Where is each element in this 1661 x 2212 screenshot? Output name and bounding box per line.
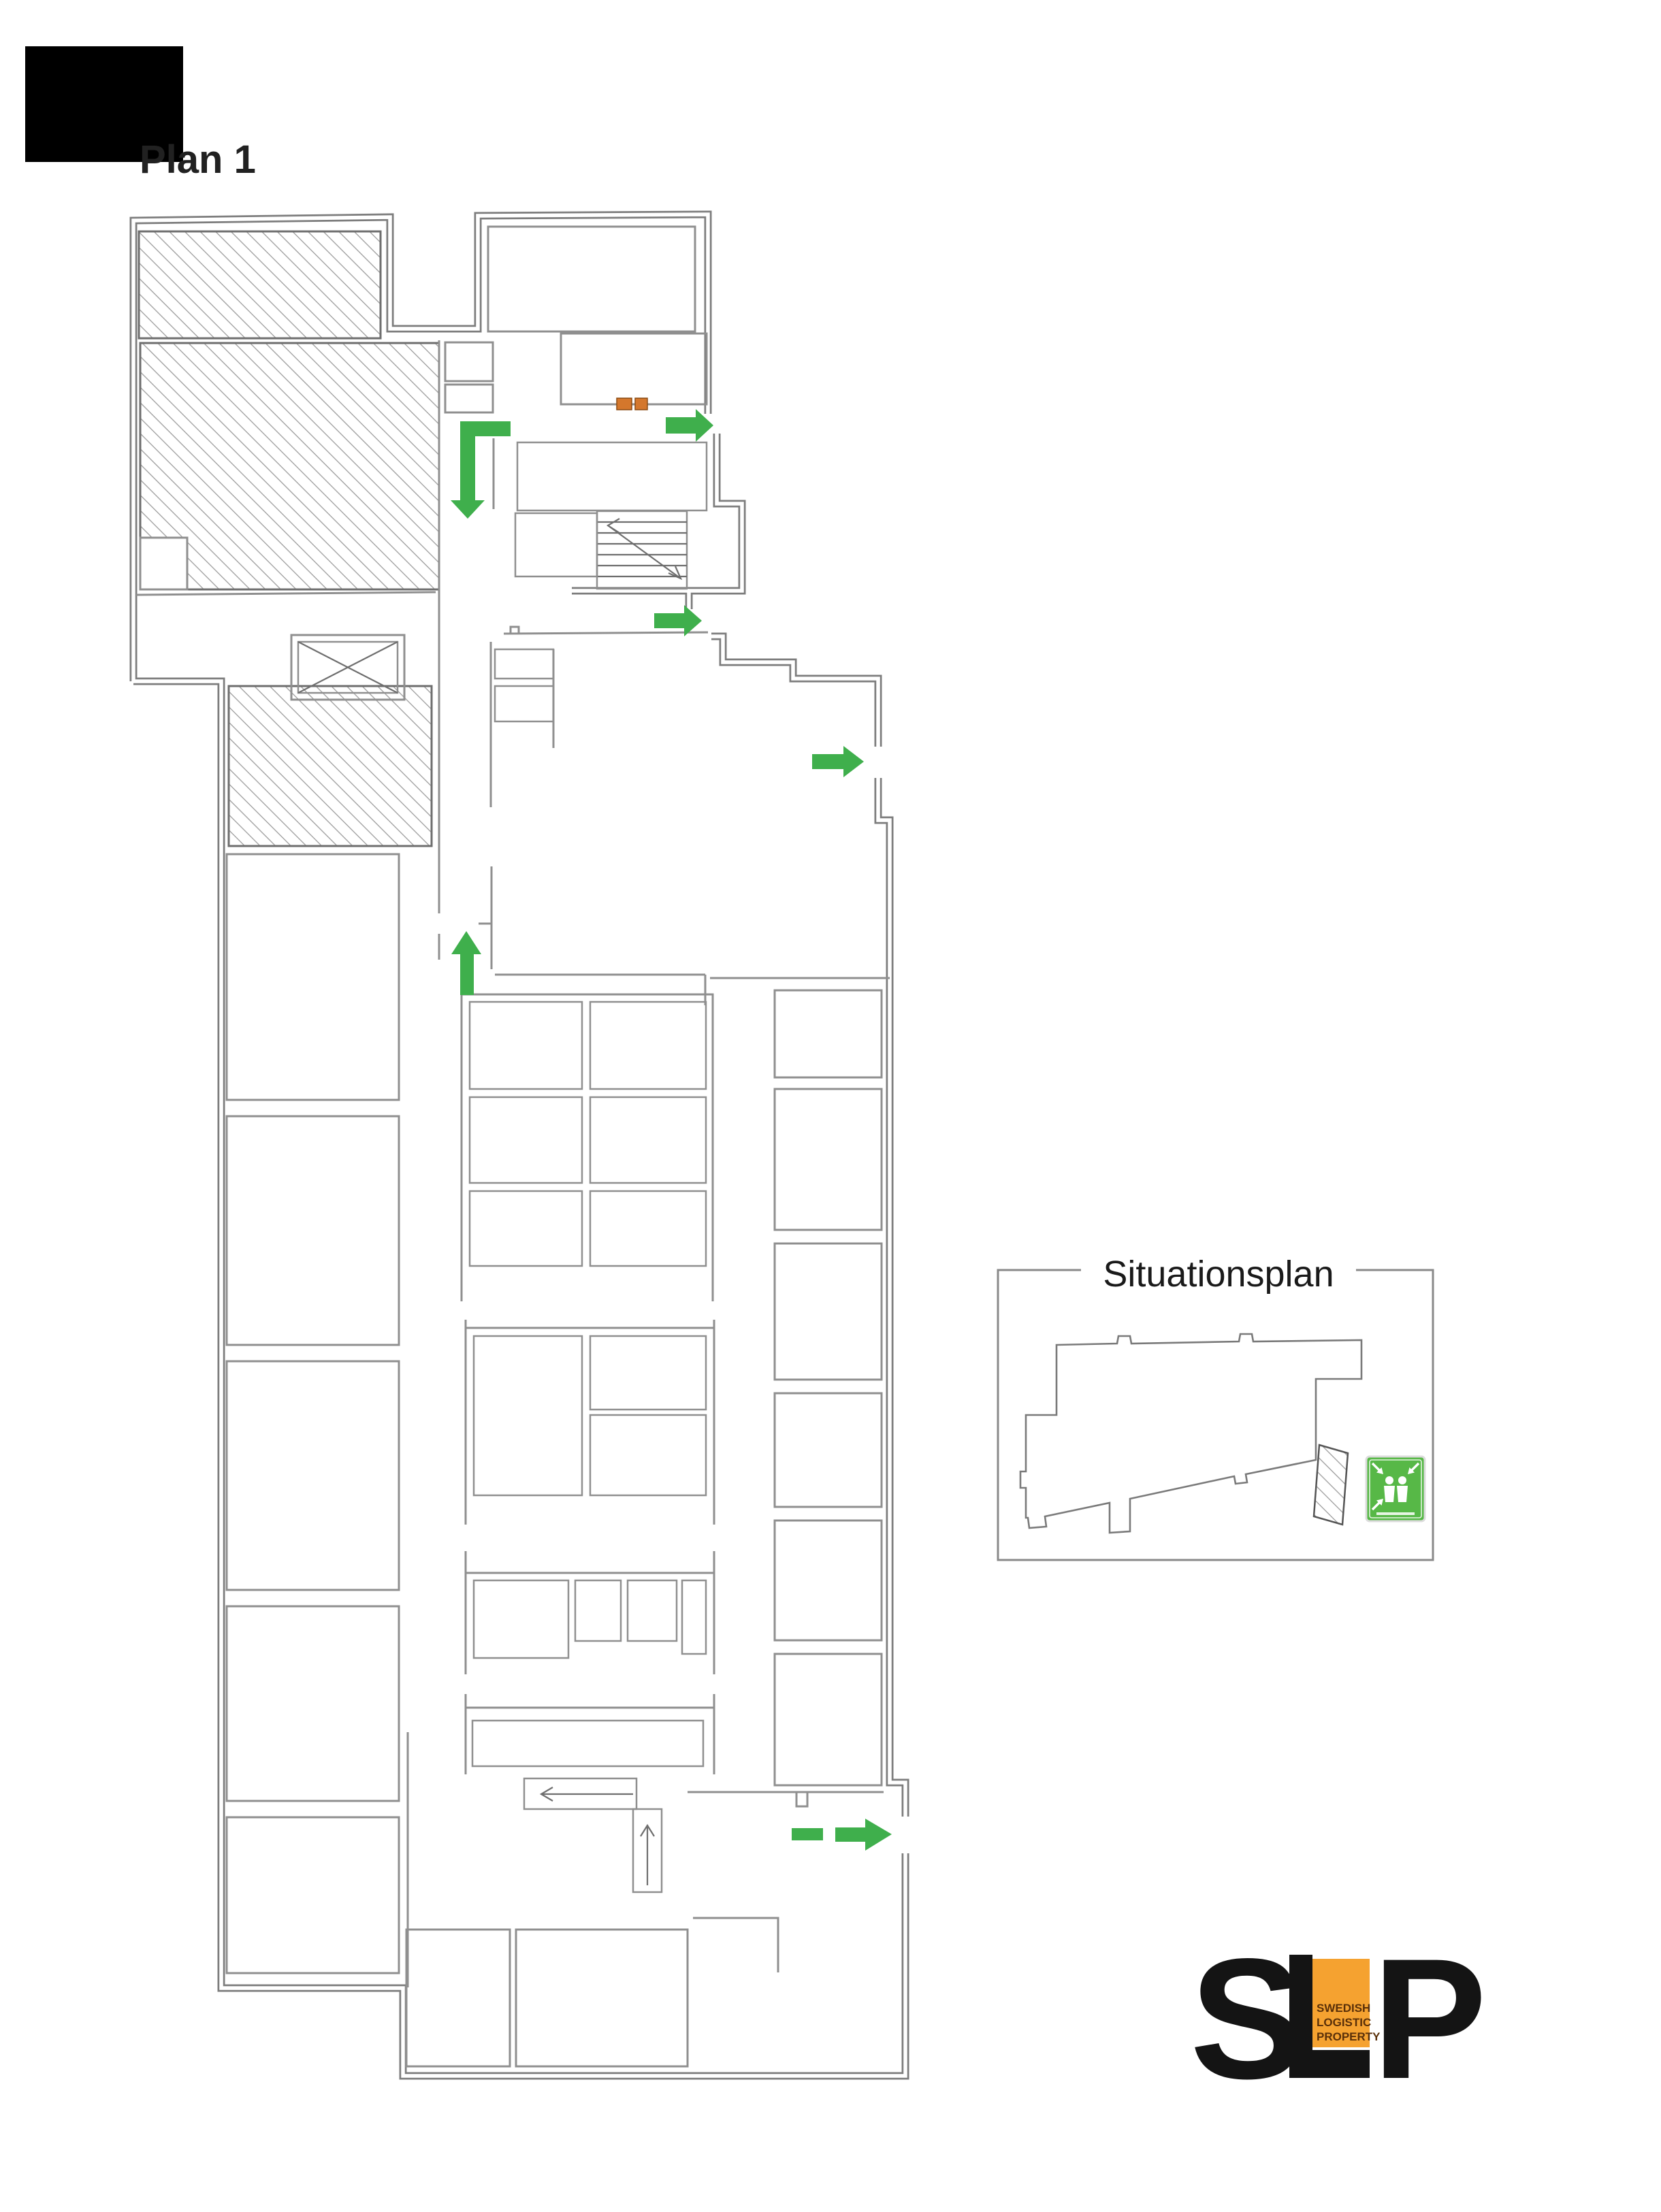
main-floor-plan bbox=[133, 214, 905, 2076]
escape-arrow-right-top-icon bbox=[666, 409, 713, 442]
left-room-column bbox=[227, 854, 399, 1973]
hatched-area-mid bbox=[229, 686, 432, 846]
situationsplan-title: Situationsplan bbox=[1103, 1254, 1334, 1295]
assembly-caption-strip bbox=[1376, 1512, 1415, 1515]
fire-door-marker-icon bbox=[617, 398, 647, 410]
central-room-blocks bbox=[462, 994, 714, 1774]
bottom-wing-rooms bbox=[406, 1732, 778, 2066]
right-room-column bbox=[688, 990, 884, 1806]
escape-arrow-right-mid-icon bbox=[812, 746, 864, 777]
hatched-area-large bbox=[140, 343, 439, 589]
escape-route-arrows bbox=[451, 409, 892, 1851]
slp-subtext-line2: LOGISTIC bbox=[1317, 2016, 1371, 2029]
slp-subtext-line3: PROPERTY bbox=[1317, 2030, 1381, 2043]
hatched-area-upper bbox=[139, 231, 381, 338]
floor-plan-canvas: Plan 1 bbox=[0, 0, 1661, 2212]
slp-letter-s: S bbox=[1190, 1923, 1304, 2115]
escape-arrow-right-bottom-dashed-icon bbox=[792, 1819, 892, 1851]
assembly-point-icon bbox=[42, 1457, 1425, 1521]
small-room-in-hatch bbox=[140, 538, 187, 589]
slp-subtext: SWEDISH LOGISTIC PROPERTY bbox=[1317, 2002, 1381, 2043]
escape-arrow-elbow-down-icon bbox=[451, 421, 511, 519]
escape-arrow-up-icon bbox=[451, 931, 481, 995]
situationsplan-building-outline bbox=[1020, 1334, 1361, 1533]
slp-logo: S SWEDISH LOGISTIC PROPERTY P bbox=[1190, 1923, 1487, 2115]
situationsplan-panel: Situationsplan bbox=[42, 1254, 1433, 1560]
stairs-icon bbox=[515, 442, 707, 589]
bottom-stairs-icon bbox=[524, 1778, 662, 1892]
evacuation-plan-page: Plan 1 bbox=[0, 0, 1661, 2212]
slp-subtext-line1: SWEDISH bbox=[1317, 2002, 1370, 2015]
page-title: Plan 1 bbox=[140, 137, 256, 182]
slp-letter-p: P bbox=[1372, 1923, 1487, 2115]
situationsplan-hatched-marker bbox=[1314, 1445, 1348, 1525]
central-hall-walls bbox=[479, 627, 890, 1005]
top-wing-rooms bbox=[445, 227, 707, 509]
